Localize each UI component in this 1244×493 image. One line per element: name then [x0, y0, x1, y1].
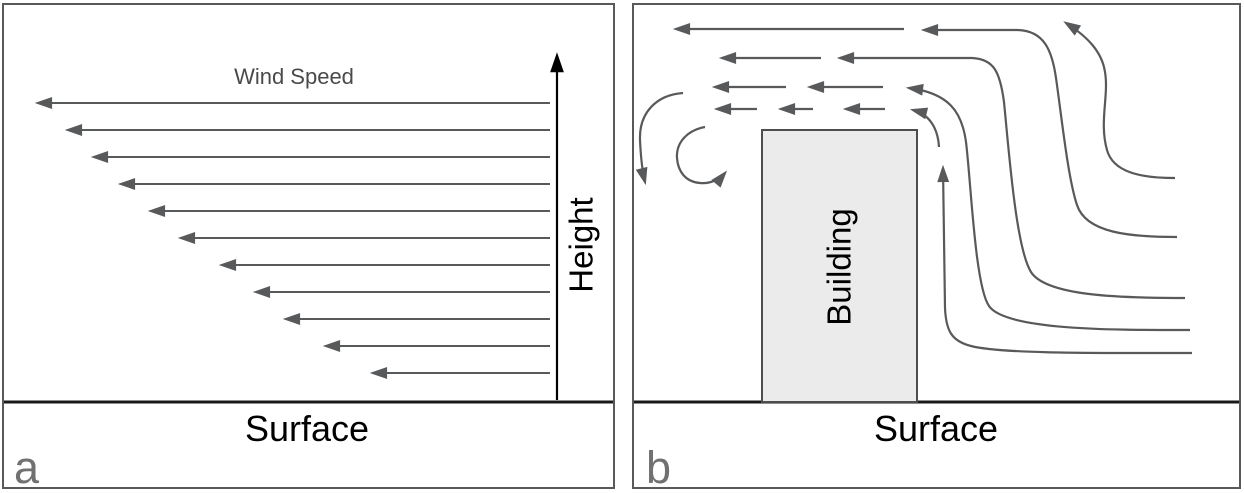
eddy-arrow	[640, 93, 683, 182]
eddy-arrow	[677, 127, 725, 183]
streamline	[943, 168, 1192, 353]
building-label: Building	[823, 208, 856, 325]
wind-profile-arrows	[38, 103, 550, 373]
figure-canvas: Wind Speed Height Surface a Building Sur…	[0, 0, 1244, 493]
surface-label-b: Surface	[874, 411, 998, 447]
panel-letter-a: a	[14, 445, 39, 490]
panel-letter-b: b	[646, 445, 671, 490]
wind-speed-label: Wind Speed	[234, 66, 354, 88]
streamline	[1066, 23, 1175, 178]
streamline	[909, 88, 1190, 330]
surface-label-a: Surface	[245, 411, 369, 447]
height-axis-label: Height	[565, 197, 598, 292]
flow-diagram-svg	[0, 0, 1244, 493]
streamline	[924, 30, 1177, 237]
